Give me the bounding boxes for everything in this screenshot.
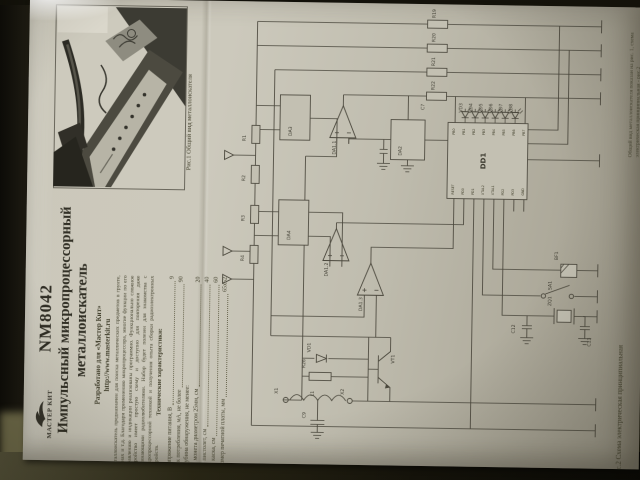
schematic-label: PB2	[472, 129, 476, 135]
bird-icon	[32, 399, 46, 429]
schematic-label: C13	[587, 337, 593, 346]
schematic-label: DA1.3	[358, 297, 364, 311]
schematic-label: C7	[420, 104, 426, 110]
schematic-label: X1	[274, 388, 280, 394]
schematic-label: DA1.1	[332, 141, 338, 155]
intro-paragraph: Металлоискатель предназначен для поиска …	[113, 275, 156, 469]
opamp-da1-1	[330, 100, 357, 144]
figure1-caption: Рис.1 Общий вид металлоискателя	[185, 36, 199, 170]
schematic-label: DA1.2	[324, 263, 330, 277]
schematic-label: VD1	[306, 343, 312, 353]
block-da3	[280, 95, 311, 140]
transistor-vt1	[368, 337, 391, 401]
figure2-caption: Рис.2 Схема электрическая принципиальная	[615, 245, 632, 469]
schematic-label: VD4	[468, 103, 474, 113]
diode-vd1	[316, 354, 326, 362]
schematic-label: PB5	[502, 129, 506, 135]
figure1-photo	[53, 4, 188, 190]
switch-sa1	[541, 285, 574, 299]
schematic-label: VD8	[508, 104, 514, 114]
schematic-label: R20	[431, 33, 437, 42]
schematic-label: PD0	[461, 188, 465, 194]
schematic-label: R19	[432, 9, 438, 18]
specs-heading: Технические характеристики:	[155, 276, 167, 468]
corner-note: Общий вид металлоискателя показан на рис…	[628, 7, 640, 157]
doc-title: Импульсный микропроцессорный металлоиска…	[55, 181, 93, 458]
schematic-label: DA3	[288, 126, 294, 136]
schematic-label: PD3	[511, 189, 515, 195]
schematic-label: VD3	[458, 103, 464, 113]
schematic-label: DA4	[286, 230, 292, 240]
schematic-label: PB0	[452, 128, 456, 134]
schematic-label: XTAL2	[481, 185, 485, 195]
schematic-label: R3	[241, 215, 247, 221]
schematic-label: R4	[240, 255, 246, 261]
schematic-label: C12	[511, 324, 517, 333]
crystal-zq1	[554, 308, 574, 324]
schematic-label: PB4	[492, 129, 496, 135]
spec-value: 90	[177, 276, 186, 282]
spec-value: 9	[168, 276, 177, 279]
schematic-label: R21	[431, 57, 437, 66]
photo-of-instruction-sheet: МАСТЕР КИТ NM8042 Импульсный микропроцес…	[0, 0, 640, 480]
schematic-label: GND	[521, 188, 525, 196]
schematic-label: L1	[310, 391, 316, 397]
schematic-label: R2	[241, 175, 247, 181]
schematic-label: PB7	[522, 130, 526, 136]
schematic-label: VD6	[488, 103, 494, 113]
schematic-label: X2	[340, 389, 346, 395]
opamp-da1-3	[357, 257, 384, 301]
schematic-label: R26	[301, 359, 307, 368]
schematic-label: BF1	[554, 251, 560, 260]
schematic-label: PB3	[482, 129, 486, 135]
schematic-label: C9	[301, 412, 307, 418]
metal-detector-photo	[53, 4, 188, 190]
schematic-label: ZQ1	[547, 296, 553, 306]
logo-text: МАСТЕР КИТ	[46, 390, 54, 439]
buzzer-bf1	[561, 264, 577, 277]
masterkit-logo: МАСТЕР КИТ	[27, 386, 58, 442]
schematic-label: SA1	[547, 281, 553, 290]
block-da4	[278, 200, 309, 245]
schematic-label: DD1	[479, 153, 487, 170]
schematic-label: XTAL1	[491, 185, 495, 195]
schematic-label: DA2	[398, 146, 404, 156]
developed-line2: http://www.masterkit.ru	[103, 299, 114, 411]
edge-terminals	[581, 20, 602, 437]
voltage-regulator-da2	[391, 120, 426, 161]
opamp-da1-2	[323, 222, 350, 266]
schematic-label: PD1	[471, 188, 475, 194]
instruction-sheet: МАСТЕР КИТ NM8042 Импульсный микропроцес…	[23, 0, 640, 469]
schematic-figure: R19R20R21R22C7VD3VD4VD5VD6VD7VD8DD1DA1.1…	[205, 5, 626, 463]
schematic-label: RESET	[451, 184, 455, 194]
input-terminals	[223, 150, 234, 283]
schematic-label: PB6	[512, 129, 516, 135]
schematic-label: PD2	[501, 189, 505, 195]
schematic-label: R1	[242, 135, 248, 141]
schematic-label: VT1	[390, 355, 396, 364]
schematic-label: R22	[431, 81, 437, 90]
schematic-label: PB1	[462, 129, 466, 135]
paper-glare	[30, 0, 120, 21]
schematic-label: VD7	[498, 104, 504, 114]
schematic-label: VD5	[478, 103, 484, 113]
